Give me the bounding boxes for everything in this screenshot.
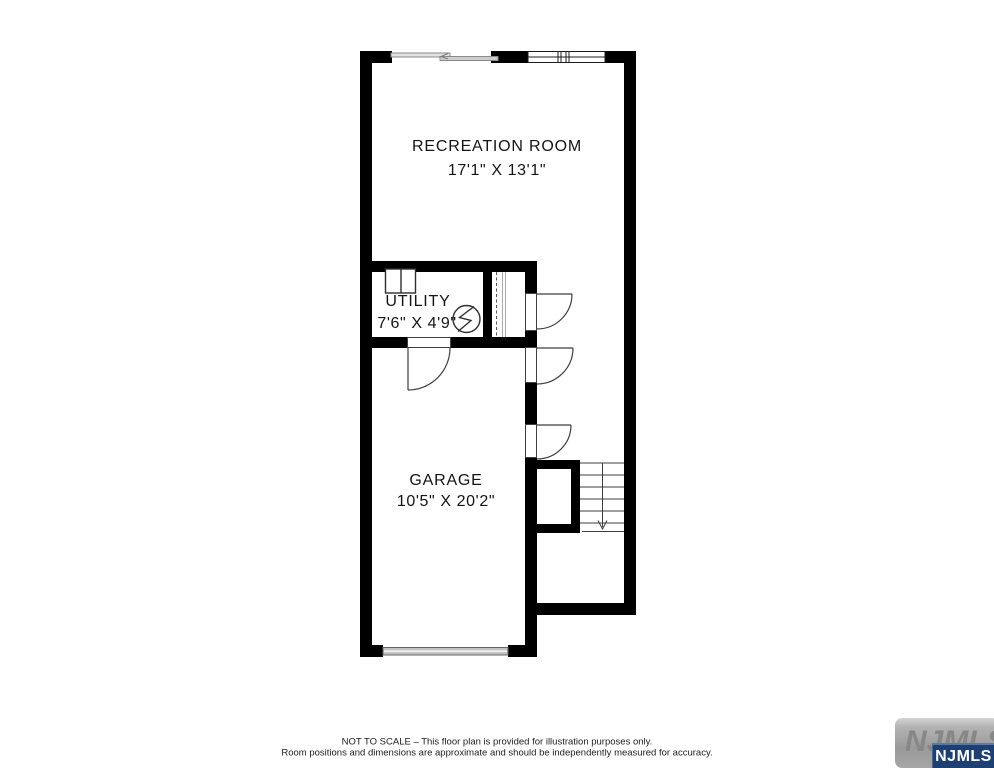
njmls-badge-text: NJMLS [935,748,992,766]
staircase [580,463,624,532]
utility-room-dimensions: 7'6" X 4'9" [377,315,456,333]
garage-dimensions: 10'5" X 20'2" [397,493,495,511]
njmls-logo-badge: NJMLS [932,743,994,768]
disclaimer-line-2: Room positions and dimensions are approx… [281,748,712,759]
washer-dryer-icon [386,269,416,293]
floor-plan-drawing [0,0,994,768]
utility-room-label: UTILITY [385,293,450,311]
water-heater-icon [453,306,480,333]
closet-interior [497,272,506,337]
sliding-door [391,53,498,61]
disclaimer-line-1: NOT TO SCALE – This floor plan is provid… [342,737,653,748]
recreation-room-dimensions: 17'1" X 13'1" [448,162,546,180]
garage-door [383,648,508,656]
recreation-room-label: RECREATION ROOM [412,138,582,156]
window [528,52,605,63]
floor-plan-page: RECREATION ROOM 17'1" X 13'1" UTILITY 7'… [0,0,994,768]
garage-label: GARAGE [409,472,482,490]
